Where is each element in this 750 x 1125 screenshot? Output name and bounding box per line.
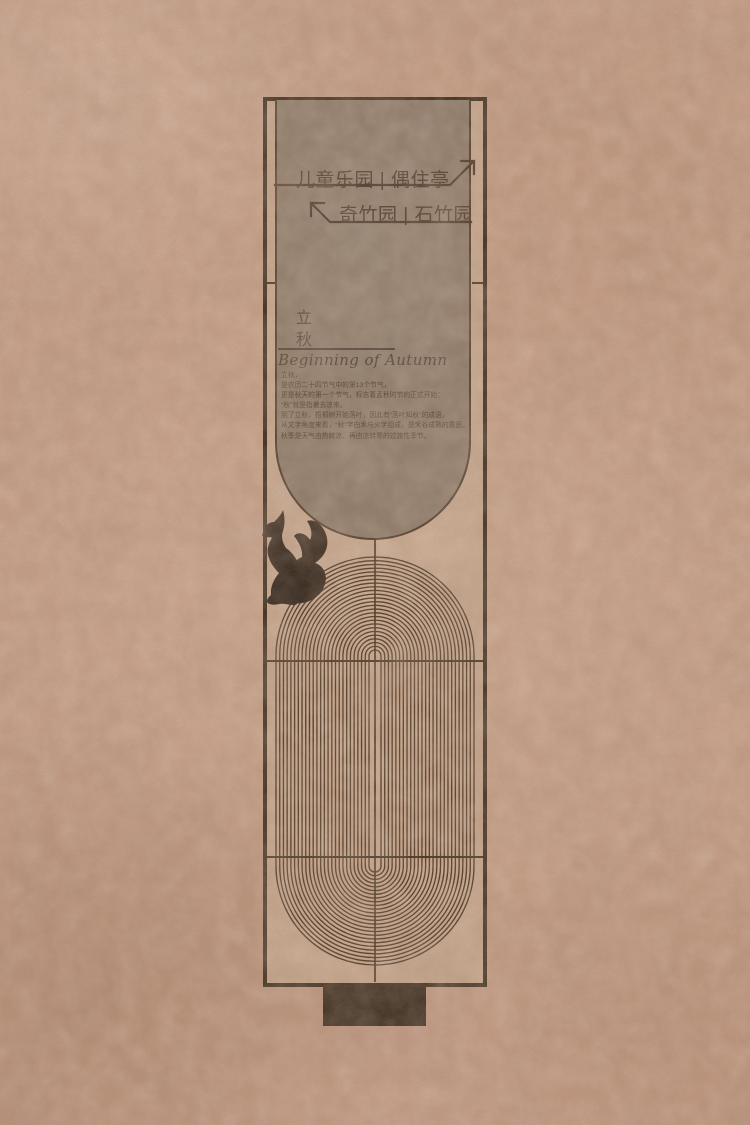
direction-row-1: 儿童乐园 | 偶住亭: [296, 165, 450, 192]
description-line: “秋”就是指暑去凉来。: [281, 401, 467, 411]
solar-term-en: Beginning of Autumn: [278, 351, 468, 369]
description-line: 是农历二十四节气中的第13个节气，: [281, 381, 467, 391]
description-line: 更是秋天的第一个节气，标志着孟秋时节的正式开始：: [281, 391, 467, 401]
description-line: 立秋，: [281, 371, 467, 381]
solar-term-zh: 立秋: [292, 309, 310, 353]
sign-head-panel: 儿童乐园 | 偶住亭 奇竹园 | 石竹园 立秋 Beginning of Aut…: [275, 100, 471, 540]
poster-canvas: 儿童乐园 | 偶住亭 奇竹园 | 石竹园 立秋 Beginning of Aut…: [0, 0, 750, 1125]
description-line: 到了立秋，梧桐树开始落叶，因此有“落叶知秋”的成语。: [281, 411, 467, 421]
solar-term-description: 立秋， 是农历二十四节气中的第13个节气， 更是秋天的第一个节气，标志着孟秋时节…: [281, 371, 467, 442]
squirrel-icon: [252, 508, 336, 612]
divider-rule: [278, 348, 395, 350]
description-line: 秋季是天气由热转凉、再由凉转寒的过渡性季节。: [281, 432, 467, 442]
direction-row-2: 奇竹园 | 石竹园: [339, 200, 473, 227]
description-line: 从文字角度来看，“秋”字由禾与火字组成，是禾谷成熟的意思。: [281, 421, 467, 431]
sign-base-block: [323, 985, 426, 1026]
